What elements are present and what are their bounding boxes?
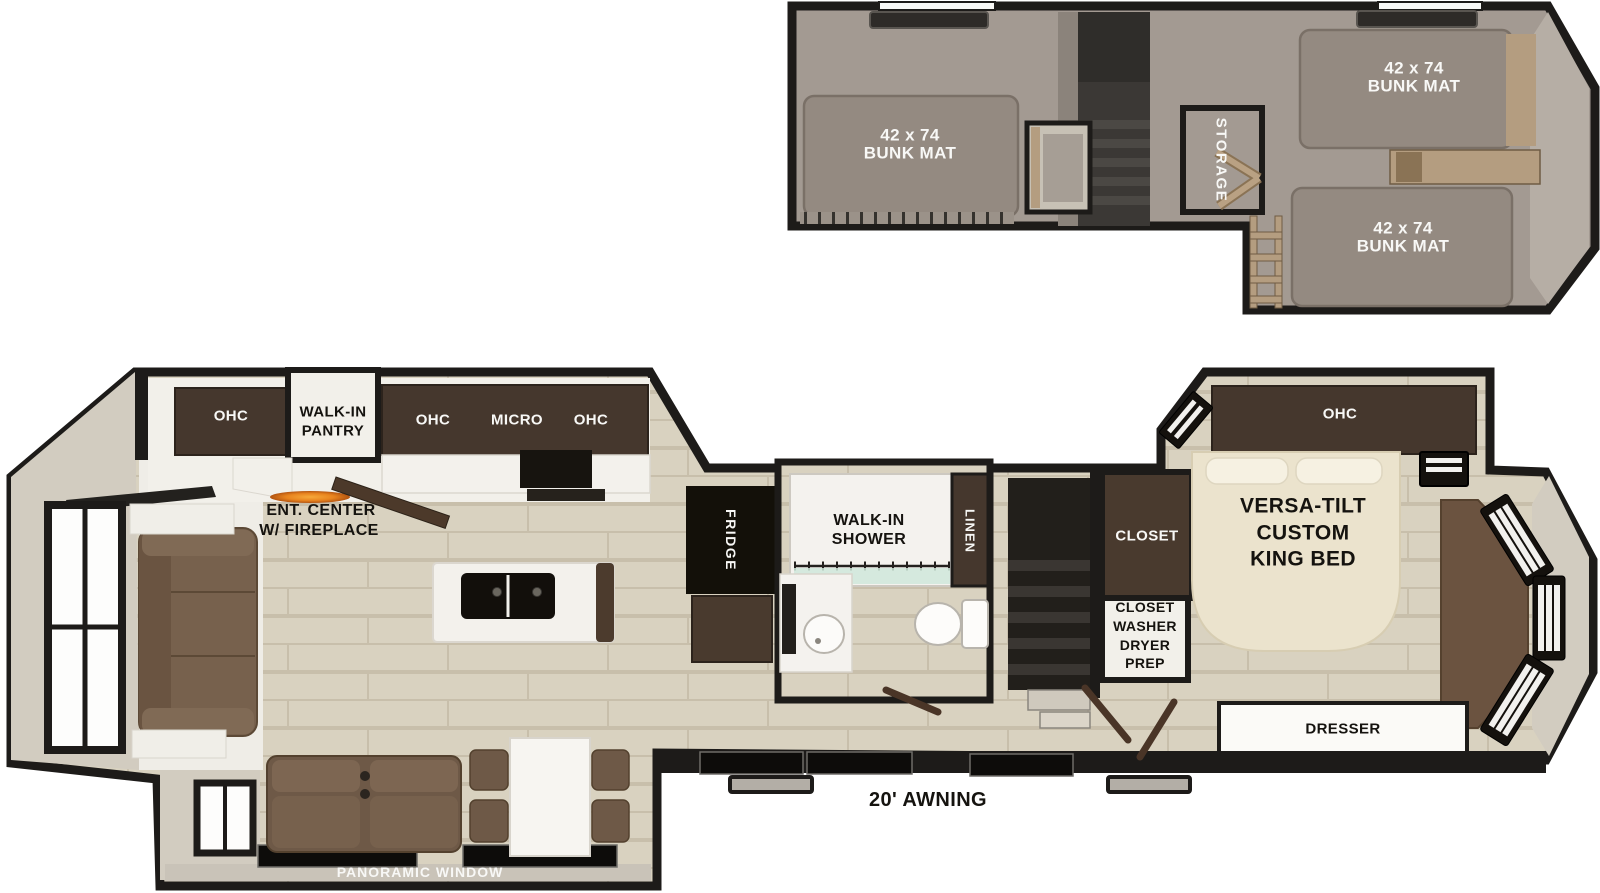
bed-label-line2: CUSTOM: [1256, 523, 1349, 544]
entry-step: [730, 777, 812, 792]
pantry-label-line1: WALK-IN: [300, 405, 367, 420]
rear-ohc-label: OHC: [214, 409, 249, 424]
micro-label: MICRO: [491, 413, 543, 428]
theater-seating: [267, 756, 461, 852]
bed-label-line3: KING BED: [1250, 549, 1356, 570]
window: [970, 754, 1073, 776]
window: [807, 752, 912, 774]
pantry-cabinet: [692, 596, 772, 662]
dinette-chair: [592, 750, 629, 790]
awning-label: 20' AWNING: [869, 790, 987, 810]
linen-label: LINEN: [964, 509, 977, 553]
wd-label-line2: WASHER: [1113, 619, 1177, 633]
window: [700, 752, 803, 774]
loft-stair-top: [1078, 12, 1150, 82]
wd-label-line1: CLOSET: [1115, 600, 1174, 614]
pillow: [1296, 458, 1382, 484]
cupholder-icon: [360, 771, 370, 781]
pantry-label-line2: PANTRY: [302, 424, 364, 439]
entry-step: [1108, 777, 1190, 792]
loft-partition: [1506, 34, 1536, 146]
bathroom: [778, 462, 990, 712]
stair-wall: [1090, 468, 1100, 698]
bunk-left-size-label: 42 x 74: [880, 127, 940, 144]
faucet-icon: [533, 588, 542, 597]
floorplan-canvas: 42 x 74 BUNK MAT 42 x 74 BUNK MAT 42 x 7…: [0, 0, 1600, 893]
kitchen-ohc-left-label: OHC: [416, 413, 451, 428]
bunk-bottom-right-label: BUNK MAT: [1357, 238, 1450, 255]
bunk-left-label: BUNK MAT: [864, 145, 957, 162]
pillow: [1206, 458, 1288, 484]
ent-center-label-line2: W/ FIREPLACE: [259, 523, 378, 539]
ent-center-label-line1: ENT. CENTER: [266, 503, 375, 519]
main-floor-section: [11, 370, 1593, 886]
toilet-bowl: [915, 603, 961, 645]
loft-table-leg: [1396, 152, 1422, 182]
bunk-top-right-size-label: 42 x 74: [1384, 60, 1444, 77]
shower-label-line2: SHOWER: [832, 532, 906, 548]
wd-label-line3: DRYER: [1120, 638, 1171, 652]
bunk-top-right-label: BUNK MAT: [1368, 78, 1461, 95]
skylight: [1357, 11, 1477, 27]
dinette-chair: [470, 750, 508, 790]
dresser-label: DRESSER: [1305, 722, 1380, 737]
bath-mirror: [782, 584, 796, 654]
kitchen-slide-wall: [135, 372, 148, 460]
cupholder-icon: [360, 789, 370, 799]
toilet-tank: [962, 600, 988, 648]
loft-roof-vent: [1378, 2, 1482, 10]
storage-label: STORAGE: [1214, 118, 1229, 202]
closet-label: CLOSET: [1115, 529, 1178, 544]
loft-cubby-floor: [1043, 134, 1083, 202]
skylight: [870, 12, 988, 28]
range-front: [527, 489, 605, 501]
bath-sink: [804, 615, 844, 653]
panoramic-window-label: PANORAMIC WINDOW: [337, 865, 504, 879]
loft-cubby-trim: [1031, 127, 1040, 208]
bunk-bottom-right-size-label: 42 x 74: [1373, 220, 1433, 237]
dinette-chair: [592, 800, 629, 842]
bedroom-window: [1420, 452, 1468, 486]
fridge-label: FRIDGE: [724, 509, 738, 571]
front-cap-window: [1533, 576, 1565, 660]
kitchen-ohc-right-label: OHC: [574, 413, 609, 428]
shower-label-line1: WALK-IN: [833, 513, 904, 529]
dinette-table: [510, 738, 590, 856]
loft-edge-rail: [800, 212, 1014, 224]
end-table: [130, 504, 234, 534]
loft-roof-vent: [879, 2, 995, 10]
floorplan-shapes: [0, 0, 1600, 893]
wd-label-line4: PREP: [1125, 656, 1165, 670]
cooktop: [520, 450, 592, 488]
end-table: [132, 730, 226, 758]
bed-label-line1: VERSA-TILT: [1240, 496, 1366, 517]
kitchen-island: [433, 563, 614, 642]
bedroom-ohc-label: OHC: [1323, 407, 1358, 422]
faucet-icon: [493, 588, 502, 597]
kitchen-counter: [382, 455, 650, 493]
dinette-chair: [470, 800, 508, 842]
sofa: [139, 528, 257, 736]
